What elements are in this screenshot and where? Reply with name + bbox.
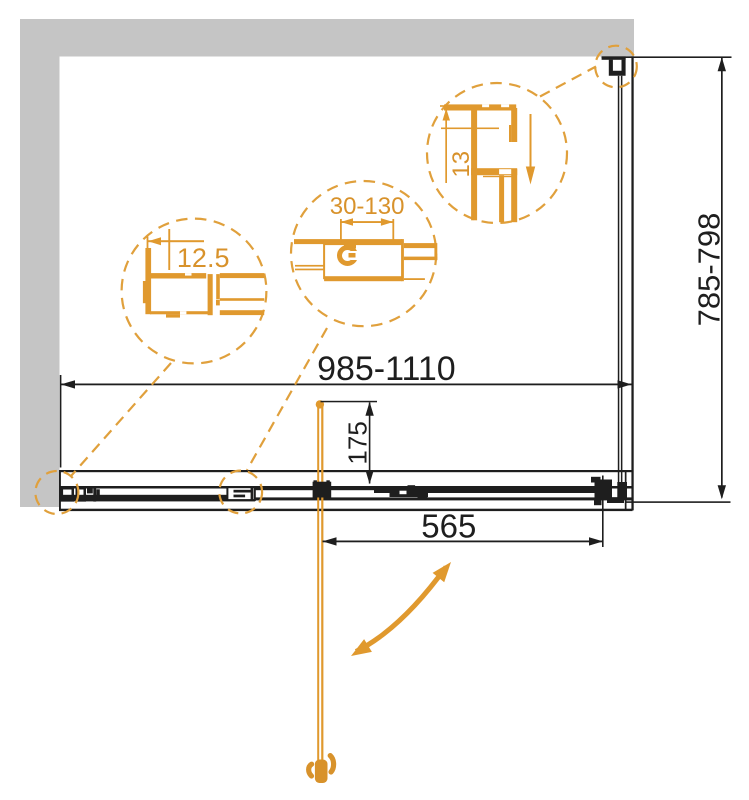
svg-text:565: 565 xyxy=(421,508,476,545)
svg-text:175: 175 xyxy=(343,421,373,464)
svg-text:985-1110: 985-1110 xyxy=(317,350,456,388)
svg-text:785-798: 785-798 xyxy=(692,213,727,327)
svg-text:30-130: 30-130 xyxy=(330,193,405,220)
svg-text:12.5: 12.5 xyxy=(177,243,230,273)
svg-text:13: 13 xyxy=(448,151,475,178)
